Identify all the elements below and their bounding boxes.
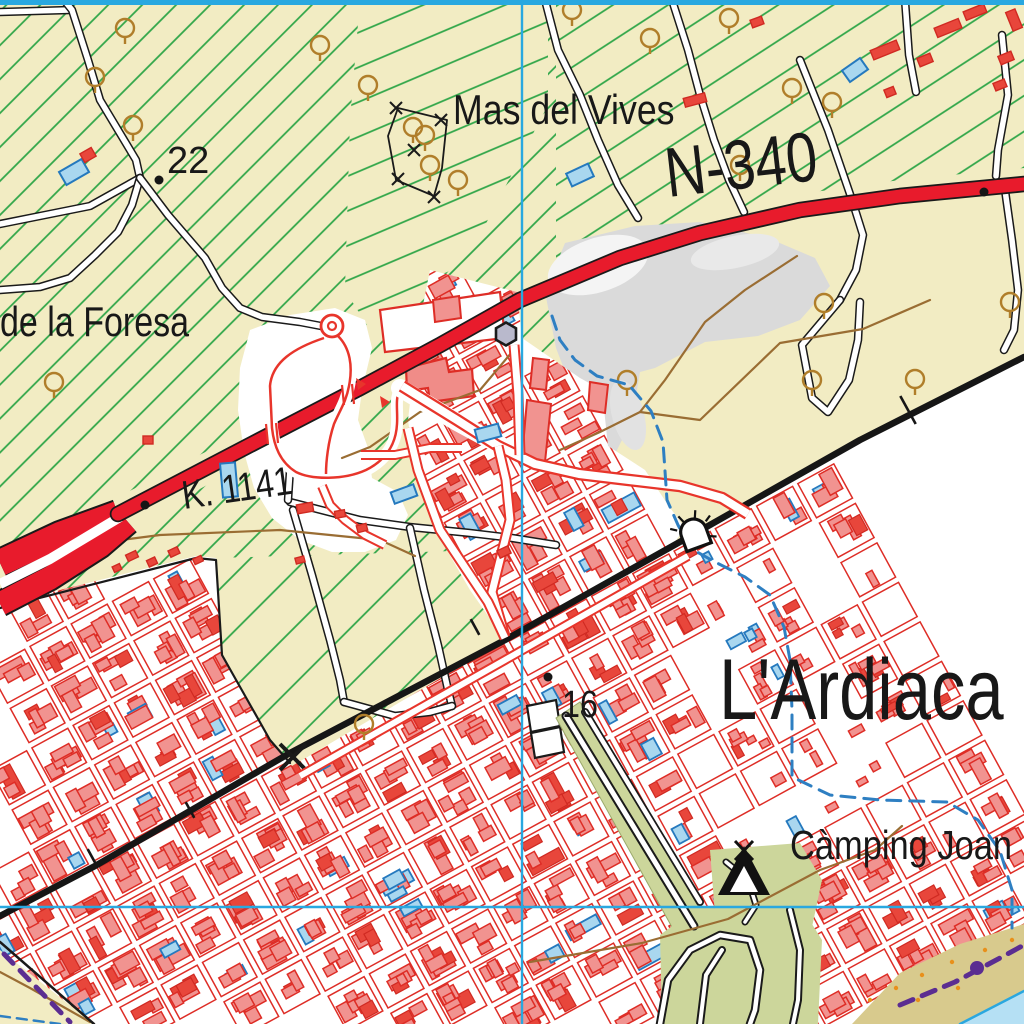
svg-text:de la Foresa: de la Foresa [0, 299, 190, 346]
svg-text:Càmping Joan: Càmping Joan [790, 823, 1012, 868]
svg-text:22: 22 [167, 140, 209, 182]
svg-text:Mas del Vives: Mas del Vives [453, 87, 675, 133]
svg-text:L'Ardiaca: L'Ardiaca [719, 642, 1004, 738]
svg-text:16: 16 [562, 684, 598, 726]
